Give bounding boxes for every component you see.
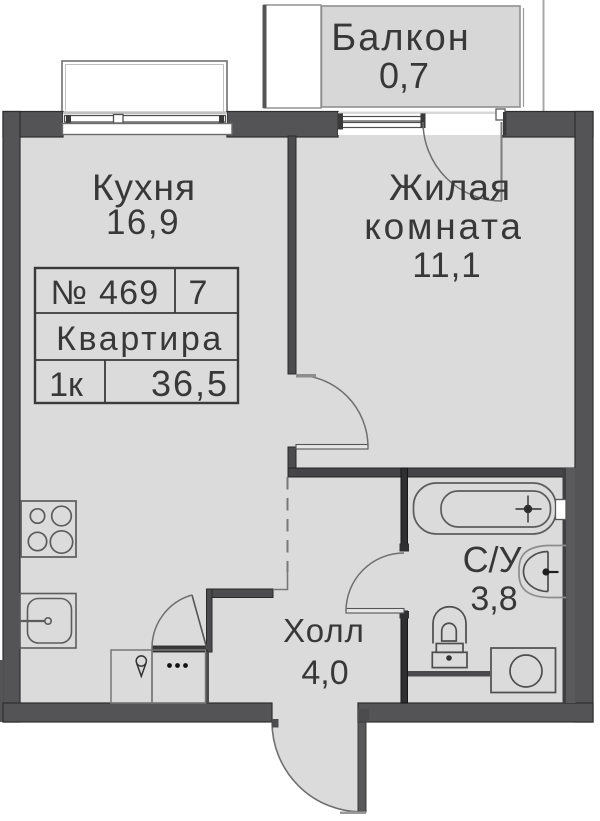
svg-text:3,8: 3,8 xyxy=(470,580,517,618)
svg-text:1к: 1к xyxy=(49,366,84,404)
svg-text:7: 7 xyxy=(189,274,208,312)
svg-text:4,0: 4,0 xyxy=(301,654,348,692)
svg-text:36,5: 36,5 xyxy=(151,363,229,404)
svg-text:Балкон: Балкон xyxy=(331,17,470,59)
svg-text:0,7: 0,7 xyxy=(379,55,429,96)
svg-text:Жилая: Жилая xyxy=(389,167,511,208)
svg-text:Кухня: Кухня xyxy=(92,167,196,208)
svg-text:Холл: Холл xyxy=(283,612,365,649)
svg-text:№ 469: № 469 xyxy=(51,274,160,312)
svg-text:С/У: С/У xyxy=(463,539,523,580)
svg-text:Квартира: Квартира xyxy=(56,320,224,358)
svg-text:11,1: 11,1 xyxy=(412,246,482,285)
svg-text:комната: комната xyxy=(364,206,524,247)
svg-text:16,9: 16,9 xyxy=(106,203,180,242)
